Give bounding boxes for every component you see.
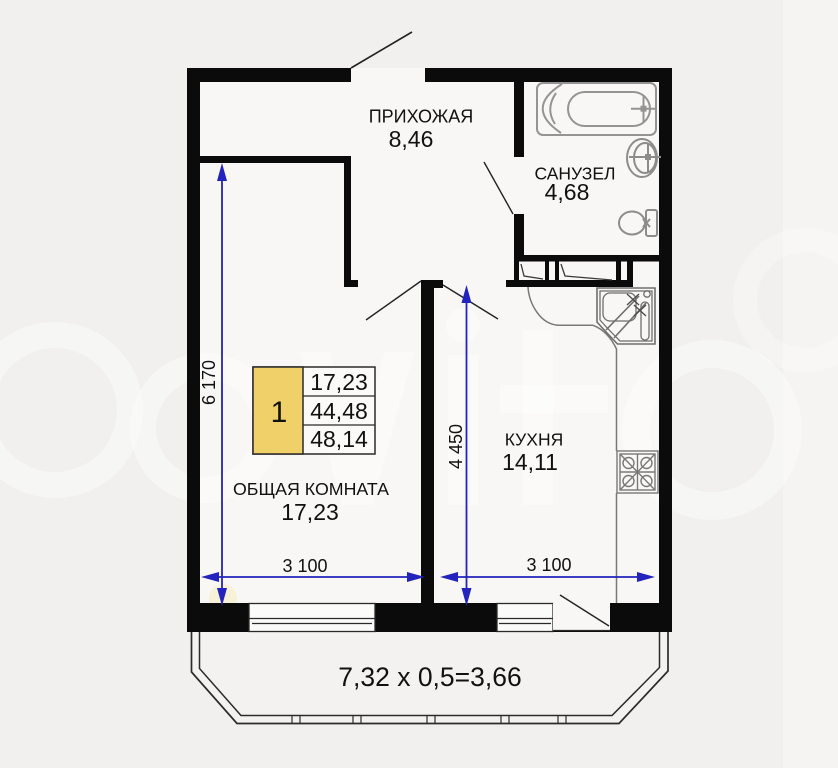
svg-text:8,46: 8,46 (389, 126, 434, 152)
svg-text:17,23: 17,23 (281, 499, 339, 525)
svg-text:4 450: 4 450 (446, 424, 466, 469)
svg-text:3 100: 3 100 (282, 556, 327, 576)
svg-text:1: 1 (271, 396, 288, 429)
svg-text:7,32 x 0,5=3,66: 7,32 x 0,5=3,66 (338, 662, 521, 692)
svg-text:48,14: 48,14 (310, 426, 368, 452)
svg-text:ПРИХОЖАЯ: ПРИХОЖАЯ (369, 107, 474, 127)
svg-text:КУХНЯ: КУХНЯ (505, 430, 563, 450)
svg-text:14,11: 14,11 (502, 449, 558, 475)
svg-text:4,68: 4,68 (545, 179, 590, 205)
svg-text:3 100: 3 100 (526, 555, 571, 575)
svg-text:17,23: 17,23 (310, 369, 368, 395)
svg-text:44,48: 44,48 (310, 398, 368, 424)
svg-text:ОБЩАЯ КОМНАТА: ОБЩАЯ КОМНАТА (233, 479, 389, 499)
svg-text:6 170: 6 170 (199, 360, 219, 405)
